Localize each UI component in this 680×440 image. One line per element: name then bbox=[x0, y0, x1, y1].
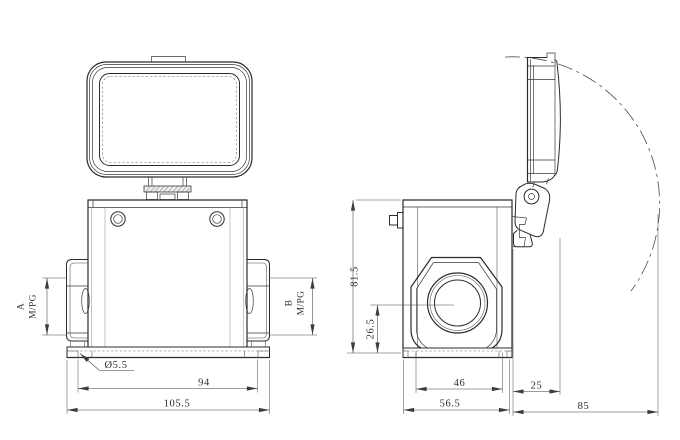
overall-depth-label: 56.5 bbox=[440, 399, 461, 410]
hinge-pin bbox=[524, 189, 539, 204]
cover-swing-label: 85 bbox=[578, 401, 590, 412]
gland-center-height-label: 26.5 bbox=[366, 319, 377, 340]
dim-entry-a: A M/PG bbox=[17, 278, 67, 335]
hole-dia-label: Ø5.5 bbox=[104, 360, 127, 371]
cable-entry-a bbox=[67, 260, 90, 348]
latch-offset-label: 25 bbox=[531, 381, 543, 392]
side-view: 81.5 26.5 46 56.5 25 85 bbox=[347, 53, 660, 416]
overall-width-label: 105.5 bbox=[164, 399, 191, 410]
mounting-flange-side bbox=[403, 348, 512, 358]
cover-top-tab bbox=[152, 57, 186, 63]
foot-width-label: 46 bbox=[454, 378, 466, 389]
cover-stem bbox=[144, 178, 191, 200]
dim-latch-offset: 25 bbox=[513, 238, 560, 416]
cover-front bbox=[87, 57, 252, 178]
engineering-drawing-canvas: A M/PG B M/PG Ø5.5 94 105.5 bbox=[0, 0, 680, 440]
dim-foot-width: 46 bbox=[416, 353, 503, 394]
dim-hole-dia: Ø5.5 bbox=[80, 354, 134, 372]
dim-entry-b: B M/PG bbox=[270, 278, 318, 335]
cover-screw-right bbox=[210, 212, 224, 226]
cable-entry-b bbox=[246, 260, 270, 348]
entry-a-thread: M/PG bbox=[29, 294, 39, 319]
front-view: A M/PG B M/PG Ø5.5 94 105.5 bbox=[17, 57, 318, 415]
mounting-flange-front bbox=[67, 347, 270, 358]
dim-gland-center-height: 26.5 bbox=[366, 305, 455, 353]
side-screw-peg bbox=[390, 216, 398, 226]
hole-pitch-label: 94 bbox=[198, 378, 210, 389]
entry-a-label: A bbox=[17, 303, 27, 310]
dim-overall-width: 105.5 bbox=[67, 360, 270, 414]
gland-bore-outer bbox=[428, 273, 488, 333]
entry-b-label: B bbox=[285, 300, 295, 307]
gland-bore-inner bbox=[435, 280, 481, 326]
overall-height-label: 81.5 bbox=[350, 266, 361, 287]
cover-screw-left bbox=[111, 212, 125, 226]
swing-arc bbox=[505, 57, 660, 291]
entry-b-thread: M/PG bbox=[297, 291, 307, 316]
hinge-latch bbox=[512, 179, 550, 247]
housing-body-front bbox=[88, 200, 247, 347]
cable-gland-boss bbox=[411, 258, 502, 349]
cover-open-side bbox=[528, 53, 561, 182]
